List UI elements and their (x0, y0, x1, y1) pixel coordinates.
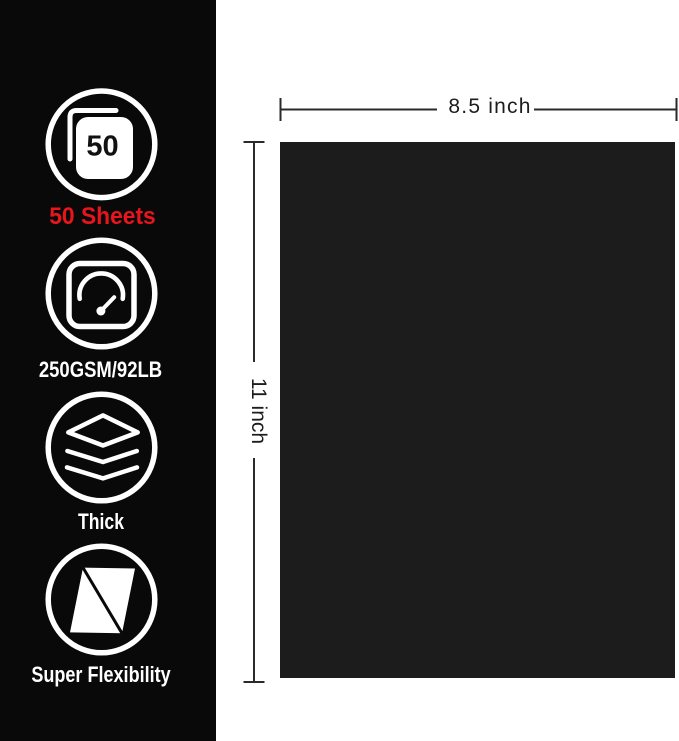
svg-text:50: 50 (86, 131, 118, 163)
